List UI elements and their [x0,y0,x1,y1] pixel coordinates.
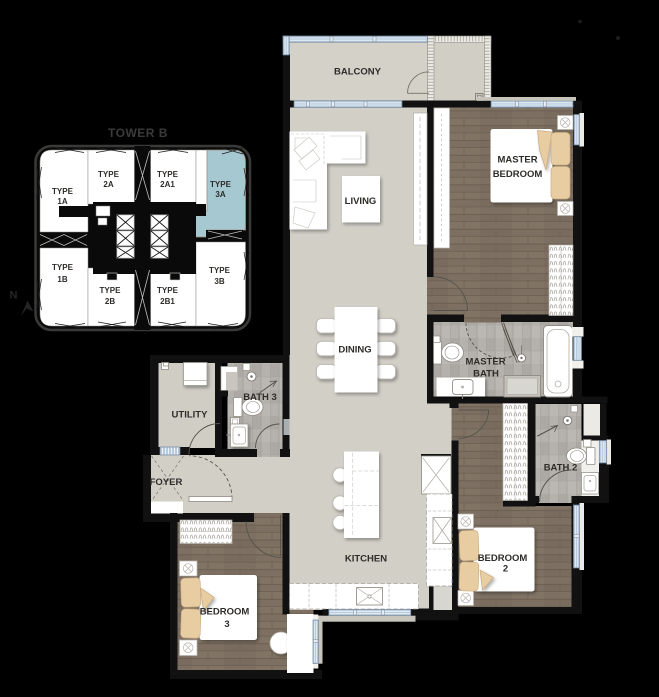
svg-text:N: N [10,290,18,302]
svg-text:TYPE: TYPE [210,180,232,189]
svg-text:BEDROOM: BEDROOM [478,553,528,564]
svg-text:TYPE: TYPE [100,286,122,295]
svg-text:3A: 3A [215,190,225,199]
svg-text:2B1: 2B1 [160,297,175,306]
svg-text:BATH 2: BATH 2 [544,463,578,474]
svg-text:MASTER: MASTER [465,357,505,368]
svg-text:2: 2 [503,564,508,575]
svg-text:UTILITY: UTILITY [172,410,209,421]
svg-text:TYPE: TYPE [52,187,74,196]
svg-text:LIVING: LIVING [345,196,377,207]
svg-text:TOWER B: TOWER B [108,126,168,140]
svg-text:TYPE: TYPE [98,170,120,179]
svg-text:TYPE: TYPE [52,263,74,272]
svg-text:DINING: DINING [338,345,371,356]
svg-text:TYPE: TYPE [157,286,179,295]
svg-text:KITCHEN: KITCHEN [345,554,387,565]
svg-text:BATH 3: BATH 3 [243,392,277,403]
svg-text:3: 3 [224,619,229,630]
svg-text:BATH: BATH [473,369,499,380]
svg-text:FOYER: FOYER [150,477,183,488]
svg-text:MASTER: MASTER [497,155,537,166]
svg-text:BALCONY: BALCONY [334,67,382,78]
svg-text:BEDROOM: BEDROOM [200,607,250,618]
svg-text:TYPE: TYPE [157,170,179,179]
svg-text:2A1: 2A1 [160,180,175,189]
svg-text:BEDROOM: BEDROOM [493,169,543,180]
svg-text:3B: 3B [214,277,224,286]
svg-text:2A: 2A [103,180,113,189]
svg-text:TYPE: TYPE [209,266,231,275]
svg-text:1A: 1A [57,197,67,206]
svg-text:1B: 1B [57,275,67,284]
svg-text:2B: 2B [105,297,115,306]
